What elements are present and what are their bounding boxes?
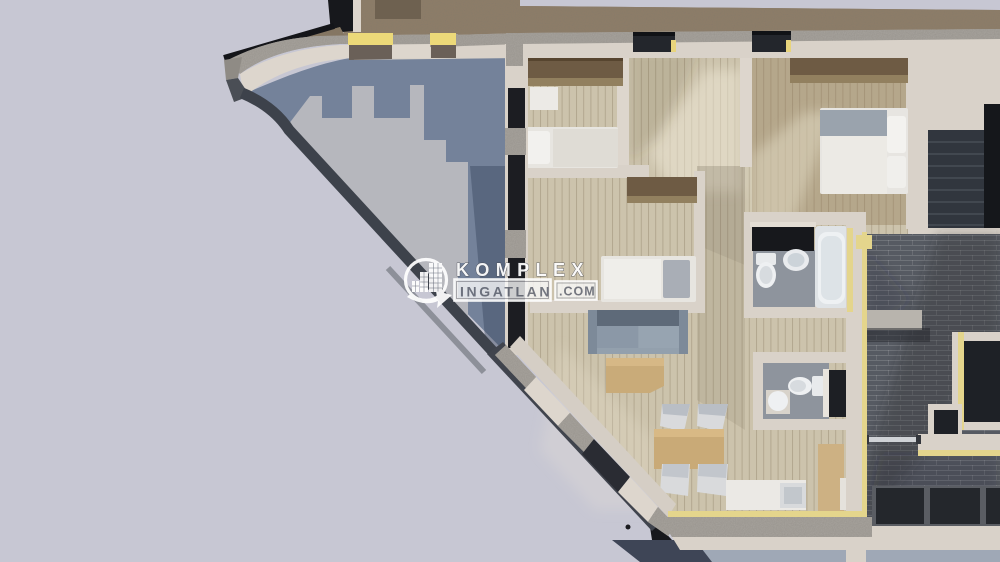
svg-text:KOMPLEX: KOMPLEX	[456, 260, 590, 280]
svg-text:INGATLAN: INGATLAN	[460, 284, 552, 300]
svg-text:.COM: .COM	[559, 285, 596, 299]
